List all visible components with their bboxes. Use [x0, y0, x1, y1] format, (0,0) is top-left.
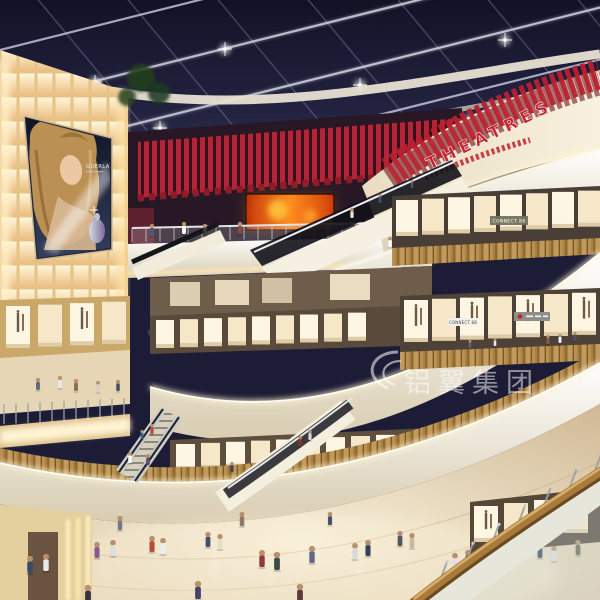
shopfront-strip-level2: CONNECT 88: [400, 288, 600, 354]
shop-sign-connect-upper: CONNECT 88: [490, 216, 528, 225]
svg-text:CONNECT 88: CONNECT 88: [493, 219, 526, 225]
perfume-bottle: [89, 219, 105, 243]
svg-text:CONNECT 88: CONNECT 88: [449, 320, 477, 325]
left-balcony: [0, 296, 130, 448]
corner-wall: [0, 505, 92, 600]
mall-atrium-rendering: GUERLAIN THEATRES: [0, 0, 600, 600]
rendering-canvas: GUERLAIN THEATRES: [0, 0, 600, 600]
shopfront-strip-center: [150, 266, 432, 354]
left-corridor-floor: [0, 350, 130, 414]
shop-sign-connect-lower: CONNECT 88: [448, 318, 478, 326]
watermark-text: 铝翼集团: [404, 368, 540, 399]
shop-sign-red-logo: [514, 312, 550, 321]
